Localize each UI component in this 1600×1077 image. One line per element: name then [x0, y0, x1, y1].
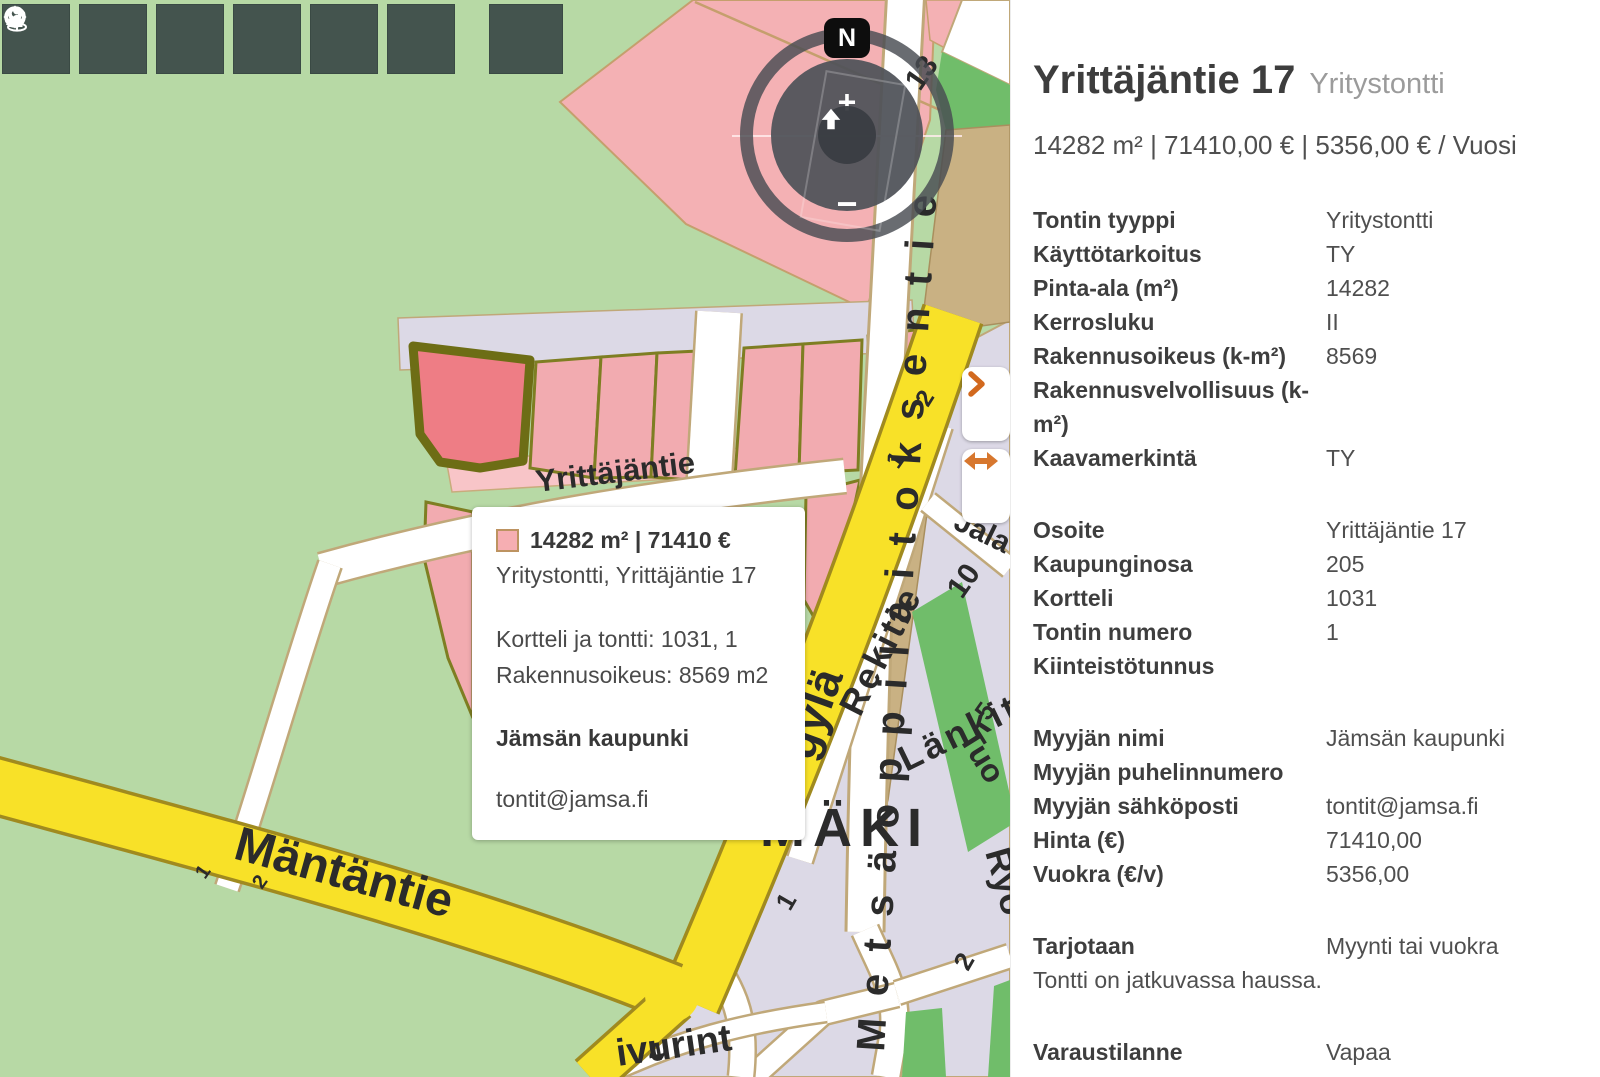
page-title: Yrittäjäntie 17Yritystontti: [1033, 56, 1572, 108]
section-address: OsoiteYrittäjäntie 17 Kaupunginosa205 Ko…: [1033, 513, 1572, 683]
double-arrow-icon: [962, 449, 1000, 473]
swap-view-button[interactable]: [962, 449, 1010, 523]
up-arrow-icon: [818, 106, 844, 132]
detail-row: VaraustilanneVapaa: [1033, 1035, 1572, 1069]
detail-row: Tontin tyyppiYritystontti: [1033, 203, 1572, 237]
map-canvas[interactable]: Yrittäjäntie Mäntäntie Metsäoppilaitokse…: [0, 0, 1010, 1077]
map-popup: 14282 m² | 71410 € Yritystontti, Yrittäj…: [472, 507, 805, 840]
detail-row: Hinta (€)71410,00: [1033, 823, 1572, 857]
property-type-subtitle: Yritystontti: [1309, 68, 1444, 100]
compass-widget[interactable]: N + −: [740, 28, 954, 242]
detail-row: KerroslukuII: [1033, 305, 1572, 339]
detail-row: TarjotaanMyynti tai vuokra: [1033, 929, 1572, 963]
measure-button[interactable]: [156, 4, 224, 74]
section-plan-details: Tontin tyyppiYritystontti Käyttötarkoitu…: [1033, 203, 1572, 475]
detail-row: Myyjän sähköpostitontit@jamsa.fi: [1033, 789, 1572, 823]
selected-parcel[interactable]: [413, 346, 530, 468]
north-badge[interactable]: N: [824, 18, 870, 58]
section-reservation: VaraustilanneVapaa: [1033, 1035, 1572, 1069]
popup-subtitle: Yritystontti, Yrittäjäntie 17: [496, 562, 781, 589]
popup-line: Rakennusoikeus: 8569 m2: [496, 657, 781, 693]
detail-row: Myyjän nimiJämsän kaupunki: [1033, 721, 1572, 755]
detail-row: OsoiteYrittäjäntie 17: [1033, 513, 1572, 547]
expand-panel-button[interactable]: [962, 367, 1010, 441]
popup-seller: Jämsän kaupunki: [496, 725, 781, 752]
street-view-button[interactable]: [489, 4, 563, 74]
detail-row: KäyttötarkoitusTY: [1033, 237, 1572, 271]
detail-row: KaavamerkintäTY: [1033, 441, 1572, 475]
app-window: Yrittäjäntie Mäntäntie Metsäoppilaitokse…: [0, 0, 1600, 1077]
detail-row: Vuokra (€/v)5356,00: [1033, 857, 1572, 891]
detail-row: Kortteli1031: [1033, 581, 1572, 615]
section-seller: Myyjän nimiJämsän kaupunki Myyjän puheli…: [1033, 721, 1572, 891]
text-label-button[interactable]: A: [233, 4, 301, 74]
contrast-button[interactable]: [79, 4, 147, 74]
offer-note: Tontti on jatkuvassa haussa.: [1033, 963, 1572, 997]
popup-email[interactable]: tontit@jamsa.fi: [496, 786, 781, 813]
detail-row: Tontin numero1: [1033, 615, 1572, 649]
chevron-right-icon: [962, 367, 990, 401]
detail-row: Kaupunginosa205: [1033, 547, 1572, 581]
section-offer: TarjotaanMyynti tai vuokra Tontti on jat…: [1033, 929, 1572, 997]
parcel-color-swatch: [496, 529, 519, 552]
detail-row: Myyjän puhelinnumero: [1033, 755, 1572, 789]
popup-title: 14282 m² | 71410 €: [530, 527, 731, 554]
detail-row: Pinta-ala (m²)14282: [1033, 271, 1572, 305]
property-summary: 14282 m² | 71410,00 € | 5356,00 € / Vuos…: [1033, 130, 1572, 161]
detail-row: Rakennusoikeus (k-m²)8569: [1033, 339, 1572, 373]
street-view-icon: [2, 4, 32, 34]
location-button[interactable]: [387, 4, 455, 74]
pan-button[interactable]: [310, 4, 378, 74]
map-toolbar: A: [2, 4, 572, 74]
zoom-out-button[interactable]: −: [836, 186, 857, 222]
detail-row: Rakennusvelvollisuus (k-m²): [1033, 373, 1572, 441]
recenter-button[interactable]: [818, 106, 876, 164]
detail-row: Kiinteistötunnus: [1033, 649, 1572, 683]
property-details-panel: Yrittäjäntie 17Yritystontti 14282 m² | 7…: [1010, 0, 1600, 1077]
popup-line: Kortteli ja tontti: 1031, 1: [496, 621, 781, 657]
property-title: Yrittäjäntie 17: [1033, 58, 1295, 102]
